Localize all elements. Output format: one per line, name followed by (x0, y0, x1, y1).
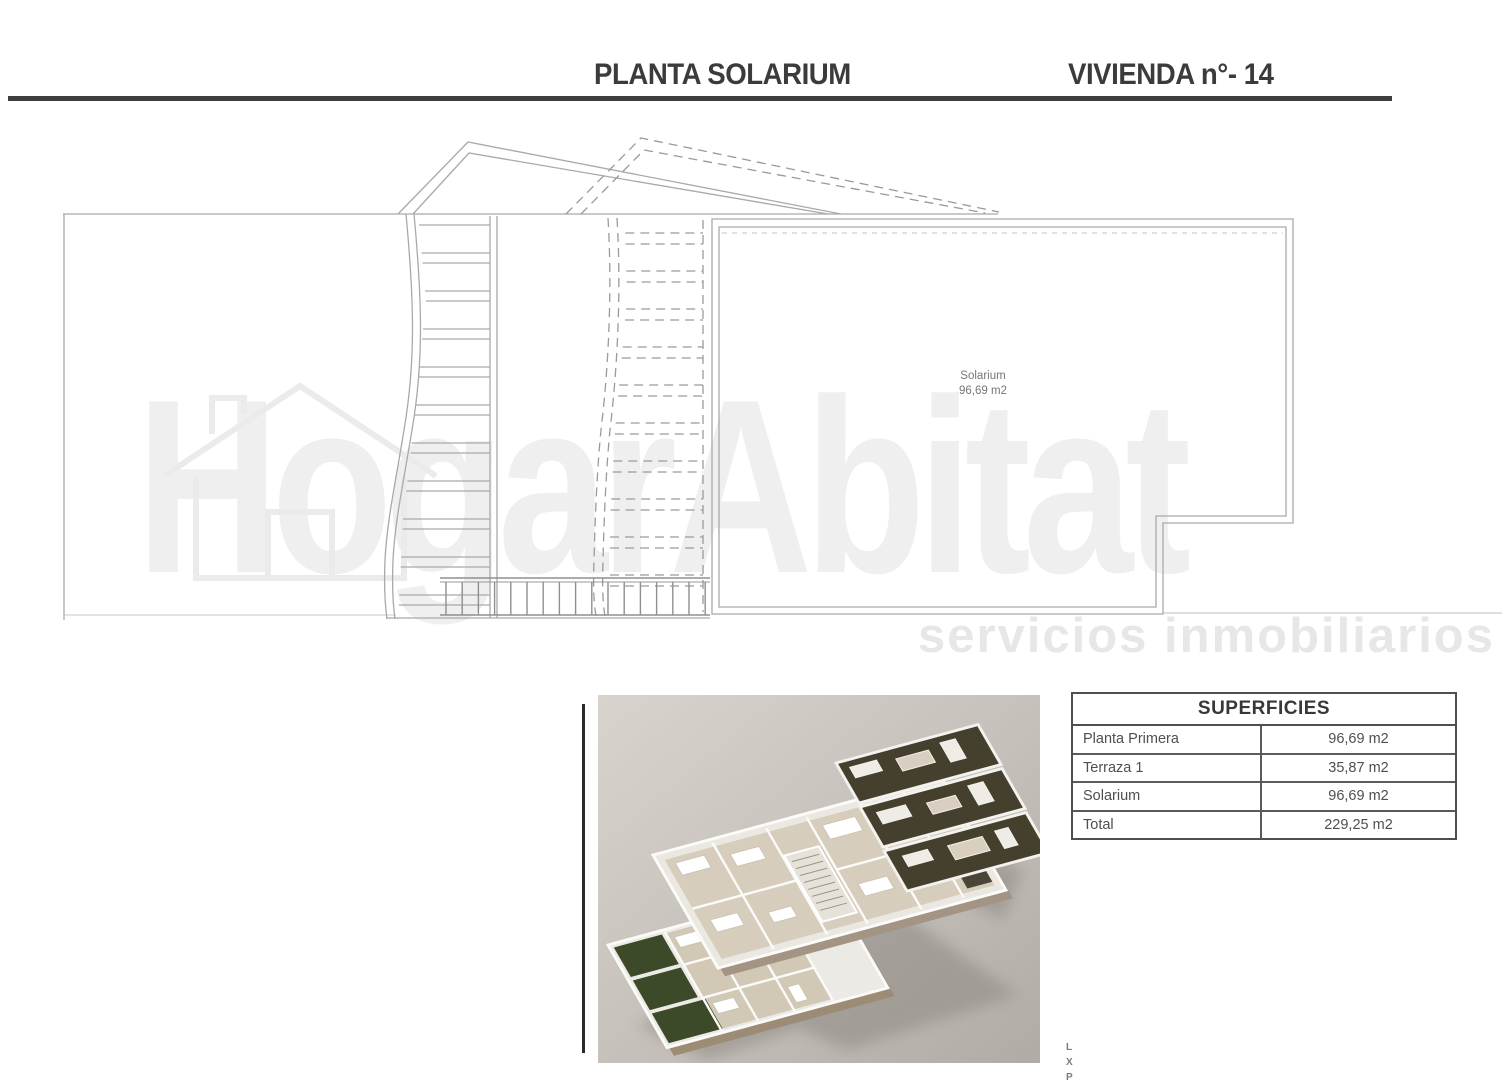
table-row: Planta Primera 96,69 m2 (1073, 726, 1455, 755)
page-title: PLANTA SOLARIUM (594, 58, 851, 92)
table-row: Total 229,25 m2 (1073, 812, 1455, 839)
table-row: Solarium 96,69 m2 (1073, 783, 1455, 812)
room-area-label: 96,69 m2 (959, 385, 1007, 397)
plan-document-page: HogarAbitat servicios inmobiliarios (0, 0, 1509, 1088)
render-left-rule (582, 704, 585, 1053)
render-side-label: L X P (1066, 1040, 1073, 1085)
surfaces-table-title: SUPERFICIES (1073, 694, 1455, 726)
room-label: Solarium (960, 370, 1005, 382)
table-row: Terraza 1 35,87 m2 (1073, 755, 1455, 784)
dwelling-number-title: VIVIENDA n°- 14 (1068, 58, 1274, 92)
3d-render-image (598, 695, 1040, 1063)
header-rule (8, 96, 1392, 101)
surfaces-table: SUPERFICIES Planta Primera 96,69 m2 Terr… (1071, 692, 1457, 840)
